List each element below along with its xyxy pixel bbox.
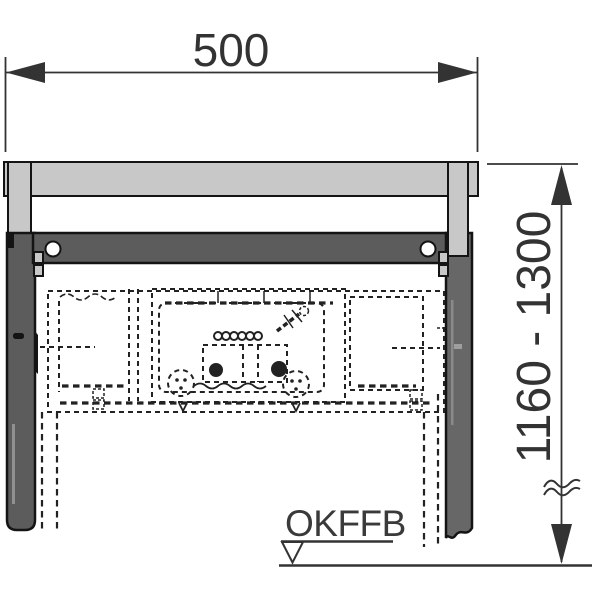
- floor-level-label: OKFFB: [285, 503, 406, 544]
- top-crossrail: [4, 162, 478, 196]
- inlet-coil: [246, 332, 254, 340]
- left-rail-slot: [13, 333, 24, 339]
- right-rail-slot: [454, 344, 462, 349]
- valve-seal: [271, 361, 287, 377]
- bracket-detail: [410, 390, 422, 399]
- inlet-coil: [254, 332, 262, 340]
- cistern-crossbar: [33, 233, 449, 263]
- right-compartment: [350, 297, 423, 390]
- right-rail: [446, 233, 472, 538]
- width-dimension: 500: [6, 24, 478, 152]
- level-marker-icon: [282, 542, 303, 563]
- inlet-coil: [230, 332, 238, 340]
- clip-left-lower: [34, 265, 43, 276]
- cistern-outer-box: [48, 291, 444, 412]
- drawing-canvas: 500: [0, 0, 600, 600]
- fixing-hole-right: [421, 242, 436, 257]
- cistern-top-squiggle: [60, 294, 116, 300]
- inlet-valve: [300, 307, 309, 316]
- floor-level: OKFFB: [279, 503, 592, 566]
- arrowhead-up-icon: [551, 165, 572, 205]
- cistern-frame-drawing: 500: [0, 0, 600, 600]
- bracket-detail: [93, 389, 104, 398]
- boss-dot: [298, 379, 302, 383]
- right-rail-highlight: [451, 300, 454, 425]
- outlet-boss-right: [283, 371, 309, 397]
- tank-bottom-wave: [194, 384, 266, 389]
- boss-dot: [183, 378, 187, 382]
- clip-left-upper: [34, 252, 43, 263]
- arrowhead-left-icon: [6, 62, 45, 83]
- boss-dot: [294, 387, 298, 391]
- arrowhead-right-icon: [438, 62, 477, 83]
- mounting-frame: [4, 162, 478, 538]
- inlet-coil: [214, 332, 222, 340]
- fixing-hole-left: [46, 242, 61, 257]
- left-post: [8, 162, 31, 237]
- clip-right-lower: [439, 265, 448, 276]
- boss-dot: [290, 379, 294, 383]
- valve-seal: [209, 363, 223, 377]
- height-dimension: 1160 - 1300: [487, 164, 580, 564]
- tank-inner: [159, 303, 324, 392]
- left-rail-flange: [34, 330, 38, 374]
- right-post: [448, 162, 468, 256]
- width-dimension-label: 500: [193, 24, 270, 76]
- outlet-boss-left: [168, 370, 194, 396]
- boss-dot: [175, 378, 179, 382]
- height-dimension-label: 1160 - 1300: [508, 211, 561, 464]
- inlet-pipe: [277, 314, 299, 331]
- inlet-coil: [222, 332, 230, 340]
- inlet-coil: [238, 332, 246, 340]
- left-rail: [7, 233, 35, 530]
- clip-right-upper: [439, 252, 448, 263]
- left-rail-corner: [7, 234, 14, 248]
- left-rail-highlight: [12, 424, 15, 504]
- boss-dot: [179, 386, 183, 390]
- arrowhead-down-icon: [551, 524, 572, 564]
